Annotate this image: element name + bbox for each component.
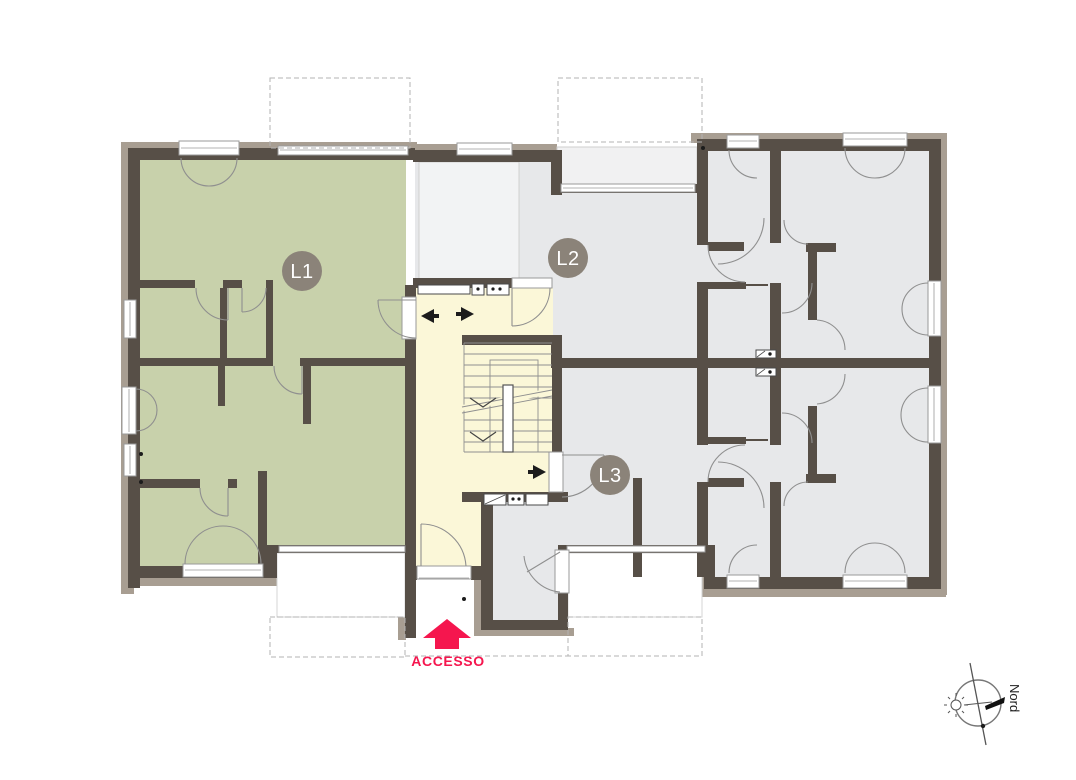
unit-badge-l1: L1	[282, 251, 322, 291]
unit-label-l3: L3	[598, 465, 621, 487]
unit-label-l1: L1	[290, 261, 313, 283]
floor-plan-page: L1 L2 L3 ACCESSO Nord	[0, 0, 1076, 780]
unit-label-l2: L2	[556, 248, 579, 270]
unit-badge-l3: L3	[590, 455, 630, 495]
accesso-arrow-icon	[423, 619, 471, 649]
l1-terrace-recess	[277, 553, 405, 617]
l2-light-floor-zone	[419, 162, 519, 280]
l2-loggia-recess	[557, 147, 697, 187]
floor-plan-svg: L1 L2 L3 ACCESSO Nord	[0, 0, 1076, 780]
nord-label: Nord	[1007, 684, 1022, 712]
unit-badge-l2: L2	[548, 238, 588, 278]
north-needle-icon	[985, 697, 1005, 710]
floors	[137, 147, 929, 620]
compass-icon: Nord	[944, 663, 1022, 745]
accesso-label: ACCESSO	[411, 653, 484, 669]
access-marker: ACCESSO	[411, 619, 484, 669]
